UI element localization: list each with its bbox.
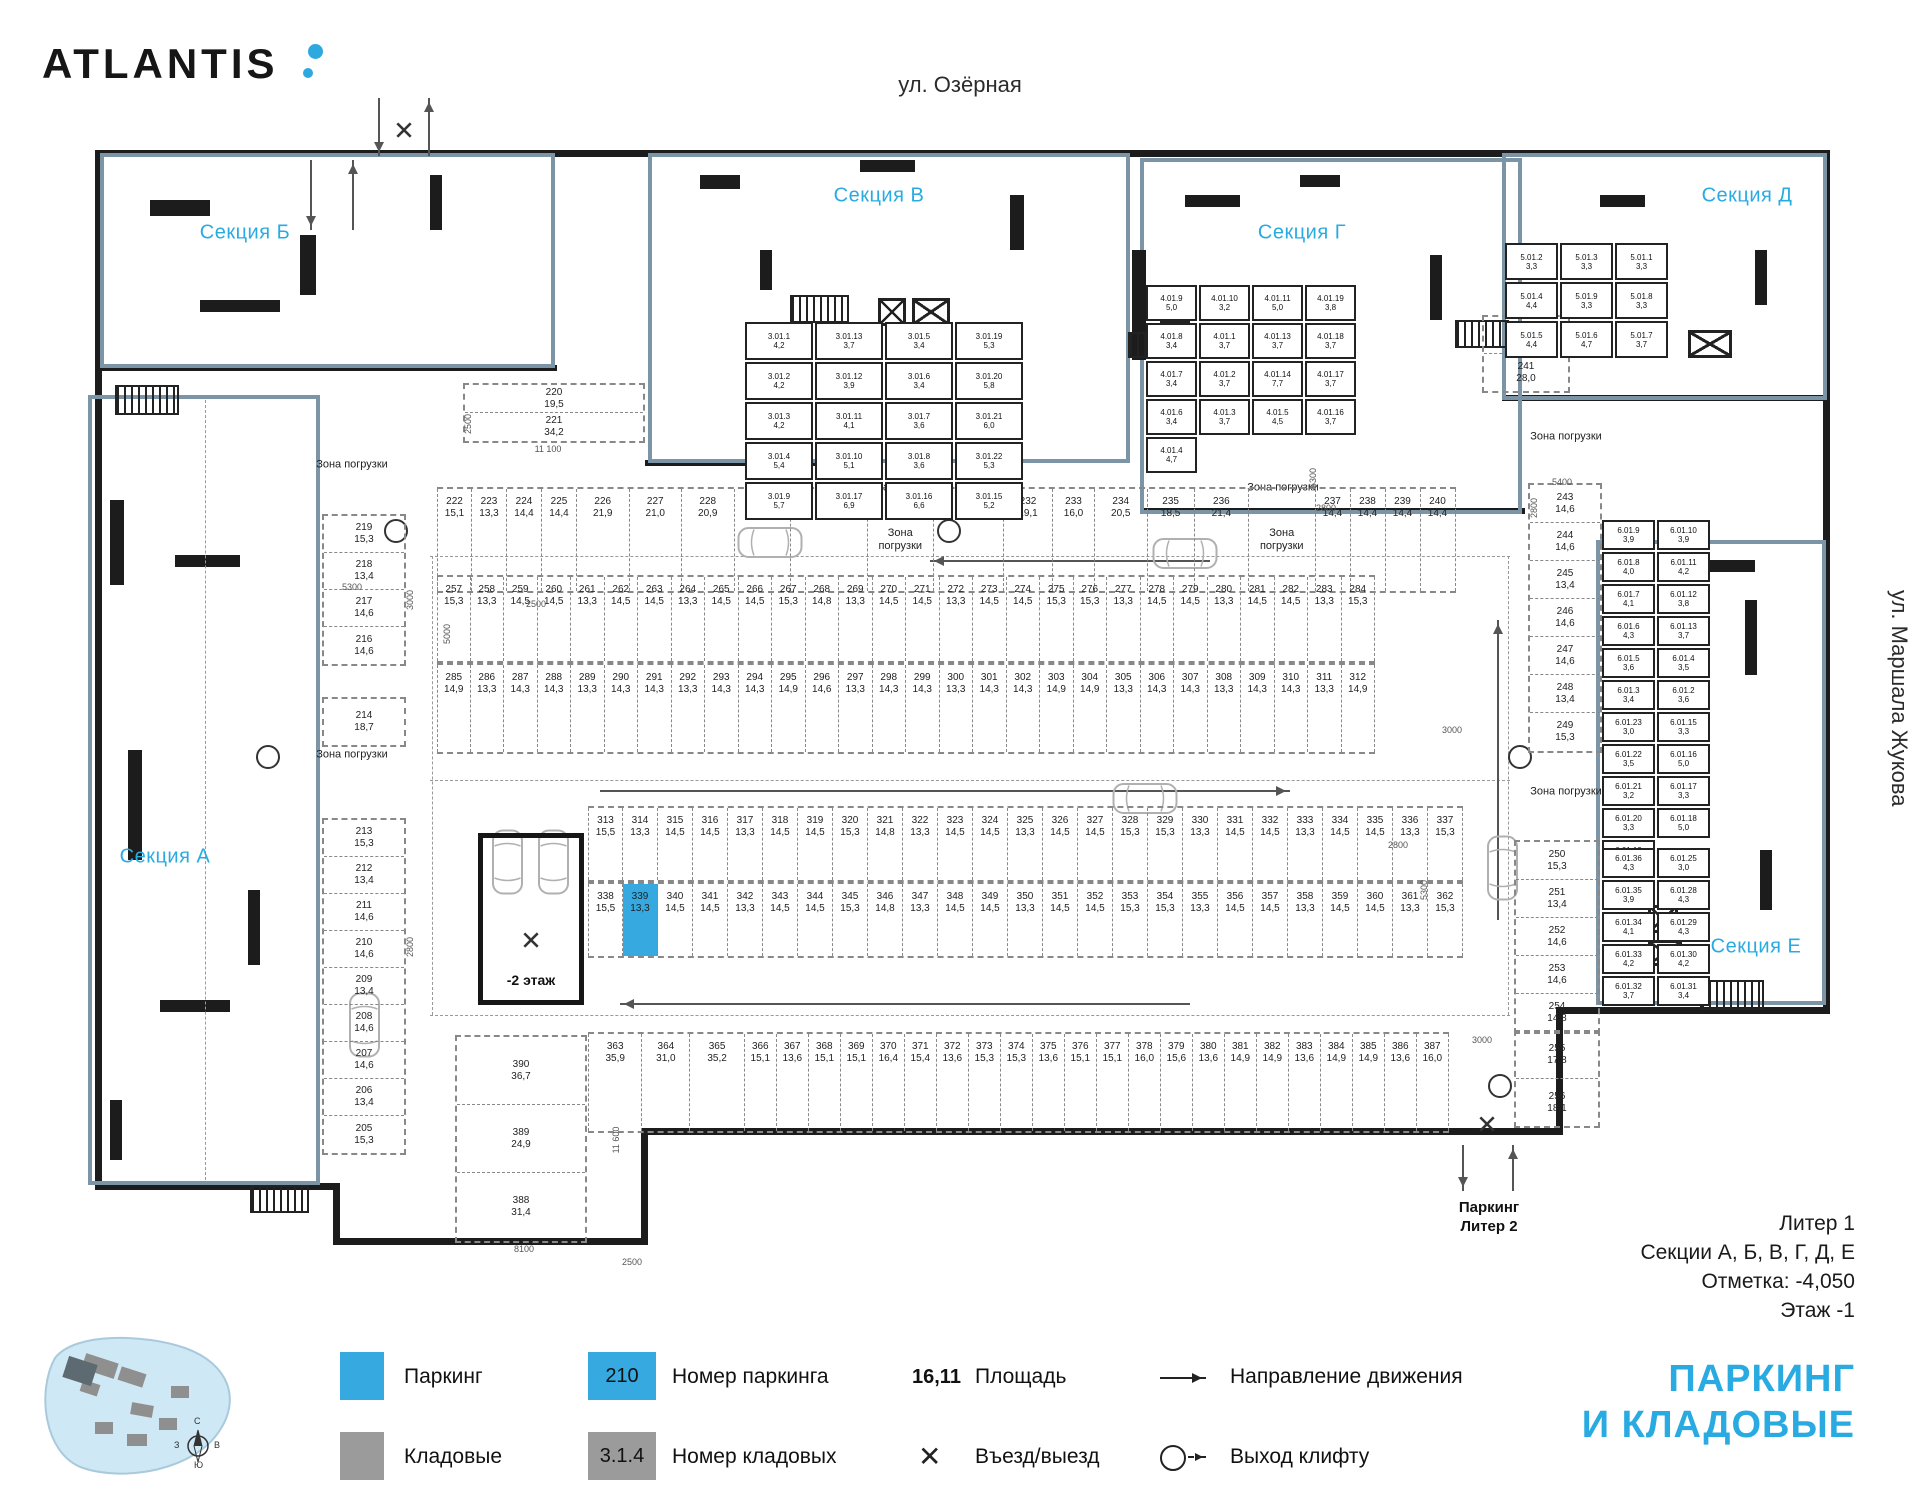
parking-space[interactable]: 32015,3	[833, 808, 868, 880]
parking-area: 15,3	[840, 903, 859, 915]
parking-number: 220	[546, 387, 563, 399]
parking-space[interactable]: 28514,9	[437, 665, 471, 752]
storage-cell: 3.01.133,7	[815, 322, 883, 360]
parking-space[interactable]: 30114,3	[973, 665, 1007, 752]
parking-number: 219	[356, 522, 373, 534]
parking-space[interactable]: 27014,5	[873, 577, 907, 661]
parking-space[interactable]: 32815,3	[1113, 808, 1148, 880]
parking-number: 275	[1048, 584, 1065, 596]
parking-space[interactable]: 36535,2	[690, 1034, 744, 1131]
parking-area: 15,1	[1071, 1053, 1090, 1065]
legend-entry-exit-icon: ✕	[918, 1440, 941, 1473]
parking-space[interactable]: 34114,5	[693, 884, 728, 956]
parking-space[interactable]: 27615,3	[1074, 577, 1108, 661]
parking-number: 368	[816, 1041, 833, 1053]
storage-area: 3,2	[1219, 303, 1230, 312]
storage-area: 3,5	[1623, 759, 1634, 768]
storage-number: 6.01.15	[1670, 718, 1697, 727]
storage-area: 5,0	[1678, 823, 1689, 832]
parking-number: 320	[842, 815, 859, 827]
parking-area: 15,3	[354, 838, 373, 850]
parking-space[interactable]: 38013,6	[1193, 1034, 1225, 1131]
storage-grid: 5.01.23,35.01.33,35.01.13,35.01.44,45.01…	[1505, 243, 1668, 358]
interior-wall	[248, 890, 260, 965]
parking-space[interactable]: 32714,5	[1078, 808, 1113, 880]
parking-space[interactable]: 31113,3	[1308, 665, 1342, 752]
parking-space[interactable]: 29314,3	[705, 665, 739, 752]
parking-space[interactable]: 24414,6	[1530, 523, 1600, 561]
parking-area: 13,3	[1015, 827, 1034, 839]
parking-space[interactable]: 34314,5	[763, 884, 798, 956]
parking-space[interactable]: 38214,9	[1257, 1034, 1289, 1131]
parking-space[interactable]: 27914,5	[1174, 577, 1208, 661]
storage-cell: 3.01.195,3	[955, 322, 1023, 360]
storage-number: 6.01.32	[1615, 982, 1642, 991]
parking-space[interactable]: 27114,5	[906, 577, 940, 661]
parking-space[interactable]: 26514,5	[705, 577, 739, 661]
parking-space[interactable]: 25715,3	[437, 577, 471, 661]
parking-area: 13,3	[1400, 903, 1419, 915]
parking-number: 348	[947, 891, 964, 903]
parking-space[interactable]: 34414,5	[798, 884, 833, 956]
parking-number: 382	[1264, 1041, 1281, 1053]
parking-space[interactable]: 34213,3	[728, 884, 763, 956]
parking-space[interactable]: 21014,6	[324, 931, 404, 968]
storage-area: 4,2	[1678, 959, 1689, 968]
dimension-label: 8100	[514, 1244, 534, 1254]
parking-number: 366	[752, 1041, 769, 1053]
parking-space[interactable]: 37315,3	[969, 1034, 1001, 1131]
parking-column: 24314,624414,624513,424614,624714,624813…	[1528, 483, 1602, 753]
parking-area: 14,6	[354, 608, 373, 620]
parking-area: 13,3	[1114, 684, 1133, 696]
parking-area: 14,6	[354, 912, 373, 924]
parking-space[interactable]: 26715,3	[772, 577, 806, 661]
parking-space[interactable]: 33114,5	[1218, 808, 1253, 880]
parking-number: 304	[1081, 672, 1098, 684]
parking-space[interactable]: 25015,3	[1516, 842, 1598, 880]
storage-number: 5.01.4	[1520, 292, 1542, 301]
parking-space[interactable]: 36713,6	[777, 1034, 809, 1131]
parking-space[interactable]: 25214,6	[1516, 918, 1598, 956]
parking-space[interactable]: 20714,6	[324, 1042, 404, 1079]
parking-space[interactable]: 29614,6	[806, 665, 840, 752]
parking-space[interactable]: 20913,4	[324, 968, 404, 1005]
parking-space[interactable]: 20515,3	[324, 1116, 404, 1153]
parking-area: 13,4	[354, 875, 373, 887]
parking-space[interactable]: 31014,3	[1275, 665, 1309, 752]
parking-space[interactable]: 31214,9	[1342, 665, 1376, 752]
parking-space[interactable]: 25813,3	[471, 577, 505, 661]
parking-space[interactable]: 23914,4	[1386, 489, 1421, 591]
parking-space[interactable]: 29114,3	[638, 665, 672, 752]
dimension-label: 11 600	[611, 1127, 621, 1154]
parking-space[interactable]: 37415,3	[1001, 1034, 1033, 1131]
storage-number: 3.01.19	[976, 332, 1003, 341]
parking-space[interactable]: 30314,9	[1040, 665, 1074, 752]
parking-space[interactable]: 36431,0	[642, 1034, 690, 1131]
parking-space[interactable]: 31914,5	[798, 808, 833, 880]
parking-space[interactable]: 35914,5	[1323, 884, 1358, 956]
parking-space[interactable]: 28114,5	[1241, 577, 1275, 661]
parking-space[interactable]: 28814,3	[538, 665, 572, 752]
parking-area: 14,3	[645, 684, 664, 696]
parking-number: 294	[746, 672, 763, 684]
parking-space-selected[interactable]: 33913,3	[623, 884, 658, 956]
dimension-label: 5300	[1308, 468, 1318, 488]
parking-space[interactable]: 33013,3	[1183, 808, 1218, 880]
parking-space[interactable]: 25618,1	[1516, 1079, 1598, 1126]
parking-space[interactable]: 29814,3	[873, 665, 907, 752]
parking-space[interactable]: 27814,5	[1141, 577, 1175, 661]
parking-space[interactable]: 37816,0	[1129, 1034, 1161, 1131]
storage-number: 4.01.10	[1211, 294, 1238, 303]
parking-space[interactable]: 31614,5	[693, 808, 728, 880]
parking-space[interactable]: 26913,3	[839, 577, 873, 661]
storage-cell: 6.01.223,5	[1602, 744, 1655, 774]
parking-space[interactable]: 21315,3	[324, 820, 404, 857]
storage-cell: 4.01.23,7	[1199, 361, 1250, 397]
storage-area: 3,5	[1678, 663, 1689, 672]
parking-space[interactable]: 28613,3	[471, 665, 505, 752]
parking-space[interactable]: 33313,3	[1288, 808, 1323, 880]
parking-space[interactable]: 29414,3	[739, 665, 773, 752]
parking-column: 21418,7	[322, 697, 406, 747]
storage-number: 4.01.6	[1160, 408, 1182, 417]
parking-space[interactable]: 31814,5	[763, 808, 798, 880]
parking-space[interactable]: 24014,4	[1421, 489, 1456, 591]
parking-space[interactable]: 21714,6	[324, 590, 404, 627]
parking-number: 359	[1332, 891, 1349, 903]
parking-column: 21315,321213,421114,621014,620913,420814…	[322, 818, 406, 1155]
storage-number: 5.01.1	[1630, 253, 1652, 262]
parking-number: 295	[780, 672, 797, 684]
parking-space[interactable]: 28415,3	[1342, 577, 1376, 661]
parking-area: 13,3	[578, 596, 597, 608]
parking-space[interactable]: 27414,5	[1007, 577, 1041, 661]
parking-area: 13,3	[910, 903, 929, 915]
parking-area: 14,9	[1348, 684, 1367, 696]
storage-area: 6,6	[913, 501, 924, 510]
parking-space[interactable]: 31413,3	[623, 808, 658, 880]
storage-number: 6.01.23	[1615, 718, 1642, 727]
parking-space[interactable]: 21418,7	[324, 699, 404, 745]
legend-parking-swatch	[340, 1352, 384, 1400]
storage-number: 3.01.16	[906, 492, 933, 501]
info-elevation: Отметка: -4,050	[1701, 1270, 1855, 1294]
parking-area: 13,4	[1555, 694, 1574, 706]
parking-space[interactable]: 37115,4	[905, 1034, 937, 1131]
parking-space[interactable]: 25517,8	[1516, 1032, 1598, 1079]
parking-area: 13,3	[1315, 596, 1334, 608]
liter2-label-line1: Паркинг	[1459, 1199, 1519, 1216]
parking-area: 15,3	[1155, 827, 1174, 839]
parking-space[interactable]: 35013,3	[1008, 884, 1043, 956]
storage-cell: 3.01.166,6	[885, 482, 953, 520]
parking-space[interactable]: 26314,5	[638, 577, 672, 661]
parking-number: 280	[1215, 584, 1232, 596]
parking-space[interactable]: 35813,3	[1288, 884, 1323, 956]
parking-space[interactable]: 27213,3	[940, 577, 974, 661]
dimension-label: 2800	[405, 937, 415, 957]
dimension-label: 5400	[1552, 477, 1572, 487]
parking-space[interactable]: 24128,0	[1484, 354, 1568, 391]
parking-number: 222	[446, 496, 463, 508]
parking-space[interactable]: 37016,4	[873, 1034, 905, 1131]
parking-space[interactable]: 34614,8	[868, 884, 903, 956]
parking-space[interactable]: 37715,1	[1097, 1034, 1129, 1131]
parking-space[interactable]: 25914,5	[504, 577, 538, 661]
storage-cell: 6.01.304,2	[1657, 944, 1710, 974]
liter2-entry-exit-icon: ✕	[1476, 1110, 1498, 1141]
parking-space[interactable]: 39036,7	[457, 1037, 585, 1105]
parking-space[interactable]: 35315,3	[1113, 884, 1148, 956]
parking-area: 14,6	[354, 949, 373, 961]
parking-space[interactable]: 21813,4	[324, 553, 404, 590]
storage-number: 3.01.9	[768, 492, 790, 501]
parking-area: 15,3	[1555, 732, 1574, 744]
parking-space[interactable]: 24714,6	[1530, 637, 1600, 675]
parking-space[interactable]: 33815,5	[588, 884, 623, 956]
storage-cell: 4.01.83,4	[1146, 323, 1197, 359]
compass-south: Ю	[194, 1460, 203, 1470]
parking-space[interactable]: 36615,1	[745, 1034, 777, 1131]
parking-area: 14,6	[1547, 937, 1566, 949]
parking-area: 14,5	[1365, 903, 1384, 915]
parking-space[interactable]: 27515,3	[1040, 577, 1074, 661]
parking-space[interactable]: 26413,3	[672, 577, 706, 661]
parking-space[interactable]: 38514,9	[1353, 1034, 1385, 1131]
storage-number: 5.01.9	[1575, 292, 1597, 301]
dimension-label: 5300	[342, 582, 362, 592]
parking-space[interactable]: 31713,3	[728, 808, 763, 880]
parking-space[interactable]: 37915,6	[1161, 1034, 1193, 1131]
storage-number: 4.01.7	[1160, 370, 1182, 379]
parking-area: 15,3	[1547, 861, 1566, 873]
parking-space[interactable]: 26614,5	[739, 577, 773, 661]
parking-space[interactable]: 27314,5	[973, 577, 1007, 661]
parking-area: 14,9	[1047, 684, 1066, 696]
storage-area: 6,9	[843, 501, 854, 510]
parking-space[interactable]: 29914,3	[906, 665, 940, 752]
parking-space[interactable]: 25314,6	[1516, 956, 1598, 994]
parking-area: 14,3	[1248, 684, 1267, 696]
parking-space[interactable]: 26014,5	[538, 577, 572, 661]
parking-space[interactable]: 38831,4	[457, 1173, 585, 1241]
storage-area: 5,2	[983, 501, 994, 510]
parking-number: 351	[1052, 891, 1069, 903]
parking-area: 14,6	[354, 1023, 373, 1035]
parking-number: 324	[982, 815, 999, 827]
parking-space[interactable]: 29713,3	[839, 665, 873, 752]
parking-number: 286	[478, 672, 495, 684]
parking-space[interactable]: 37615,1	[1065, 1034, 1097, 1131]
parking-space[interactable]: 30813,3	[1208, 665, 1242, 752]
parking-space[interactable]: 37513,6	[1033, 1034, 1065, 1131]
parking-number: 317	[737, 815, 754, 827]
storage-cell: 6.01.33,4	[1602, 680, 1655, 710]
parking-space[interactable]: 24314,6	[1530, 485, 1600, 523]
parking-number: 216	[356, 634, 373, 646]
parking-area: 14,8	[812, 596, 831, 608]
parking-area: 35,2	[707, 1053, 726, 1065]
parking-space[interactable]: 31514,5	[658, 808, 693, 880]
parking-space[interactable]: 21915,3	[324, 516, 404, 553]
parking-space[interactable]: 26814,8	[806, 577, 840, 661]
parking-space[interactable]: 35614,5	[1218, 884, 1253, 956]
parking-space[interactable]: 36335,9	[588, 1034, 642, 1131]
parking-number: 243	[1557, 492, 1574, 504]
parking-number: 249	[1557, 720, 1574, 732]
parking-number: 227	[647, 496, 664, 508]
storage-cell: 6.01.294,3	[1657, 912, 1710, 942]
parking-space[interactable]: 28313,3	[1308, 577, 1342, 661]
parking-space[interactable]: 32513,3	[1008, 808, 1043, 880]
parking-space[interactable]: 28214,5	[1275, 577, 1309, 661]
parking-space[interactable]: 36915,1	[841, 1034, 873, 1131]
parking-space[interactable]: 33414,5	[1323, 808, 1358, 880]
parking-area: 14,9	[1327, 1053, 1346, 1065]
parking-space[interactable]: 25414,8	[1516, 994, 1598, 1032]
storage-cell: 6.01.344,1	[1602, 912, 1655, 942]
parking-number: 254	[1549, 1001, 1566, 1013]
parking-area: 21,9	[593, 508, 612, 520]
storage-cell: 3.01.155,2	[955, 482, 1023, 520]
parking-space[interactable]: 36215,3	[1428, 884, 1463, 956]
parking-space[interactable]: 21213,4	[324, 857, 404, 894]
parking-space[interactable]: 36815,1	[809, 1034, 841, 1131]
parking-space[interactable]: 22134,2	[465, 413, 643, 441]
parking-number: 360	[1367, 891, 1384, 903]
parking-space[interactable]: 21114,6	[324, 894, 404, 931]
parking-space[interactable]: 33214,5	[1253, 808, 1288, 880]
parking-space[interactable]: 28913,3	[571, 665, 605, 752]
parking-space[interactable]: 28013,3	[1208, 577, 1242, 661]
parking-area: 14,5	[1365, 827, 1384, 839]
parking-space[interactable]: 34515,3	[833, 884, 868, 956]
storage-cell: 6.01.353,9	[1602, 880, 1655, 910]
parking-space[interactable]: 30714,3	[1174, 665, 1208, 752]
info-liter: Литер 1	[1779, 1212, 1855, 1236]
parking-space[interactable]: 38414,9	[1321, 1034, 1353, 1131]
legend-parking-number-label: Номер паркинга	[672, 1365, 829, 1389]
parking-number: 277	[1115, 584, 1132, 596]
parking-number: 205	[356, 1123, 373, 1135]
parking-space[interactable]: 29213,3	[672, 665, 706, 752]
legend-lift-label: Выход клифту	[1230, 1445, 1369, 1469]
parking-number: 350	[1017, 891, 1034, 903]
parking-space[interactable]: 24813,4	[1530, 675, 1600, 713]
dimension-label: 2500	[526, 599, 546, 609]
parking-space[interactable]: 35214,5	[1078, 884, 1113, 956]
storage-cell: 6.01.213,2	[1602, 776, 1655, 806]
parking-space[interactable]: 34914,5	[973, 884, 1008, 956]
parking-number: 315	[667, 815, 684, 827]
parking-space[interactable]: 30914,3	[1241, 665, 1275, 752]
parking-space[interactable]: 27713,3	[1107, 577, 1141, 661]
storage-cell: 3.01.83,6	[885, 442, 953, 480]
parking-space[interactable]: 35114,5	[1043, 884, 1078, 956]
parking-space[interactable]: 31315,5	[588, 808, 623, 880]
parking-area: 14,5	[945, 903, 964, 915]
storage-area: 3,3	[1636, 262, 1647, 271]
parking-space[interactable]: 38114,9	[1225, 1034, 1257, 1131]
parking-space[interactable]: 32614,5	[1043, 808, 1078, 880]
parking-space[interactable]: 20613,4	[324, 1079, 404, 1116]
parking-number: 389	[513, 1127, 530, 1139]
parking-area: 13,4	[354, 986, 373, 998]
parking-area: 14,5	[1281, 596, 1300, 608]
parking-space[interactable]: 35714,5	[1253, 884, 1288, 956]
parking-space[interactable]: 34713,3	[903, 884, 938, 956]
direction-arrow	[620, 1003, 1190, 1005]
parking-space[interactable]: 30513,3	[1107, 665, 1141, 752]
parking-space[interactable]: 22019,5	[465, 385, 643, 413]
parking-space[interactable]: 26113,3	[571, 577, 605, 661]
parking-space[interactable]: 20814,6	[324, 1005, 404, 1042]
lane-dashed-line	[430, 1015, 1510, 1016]
parking-space[interactable]: 30414,9	[1074, 665, 1108, 752]
parking-space[interactable]: 21614,6	[324, 627, 404, 664]
parking-space[interactable]: 33715,3	[1428, 808, 1463, 880]
parking-space[interactable]: 30614,3	[1141, 665, 1175, 752]
parking-area: 13,3	[1015, 903, 1034, 915]
parking-space[interactable]: 37213,6	[937, 1034, 969, 1131]
parking-space[interactable]: 29014,3	[605, 665, 639, 752]
parking-space[interactable]: 32213,3	[903, 808, 938, 880]
parking-space[interactable]: 24915,3	[1530, 713, 1600, 751]
storage-number: 6.01.33	[1615, 950, 1642, 959]
parking-space[interactable]: 35415,3	[1148, 884, 1183, 956]
storage-area: 3,3	[1581, 301, 1592, 310]
parking-space[interactable]: 24614,6	[1530, 599, 1600, 637]
parking-number: 279	[1182, 584, 1199, 596]
parking-number: 296	[813, 672, 830, 684]
parking-area: 14,5	[544, 596, 563, 608]
parking-number: 335	[1367, 815, 1384, 827]
storage-number: 6.01.29	[1670, 918, 1697, 927]
parking-space[interactable]: 30214,3	[1007, 665, 1041, 752]
parking-space[interactable]: 38313,6	[1289, 1034, 1321, 1131]
interior-wall	[1600, 195, 1645, 207]
storage-cell: 5.01.33,3	[1560, 243, 1613, 280]
parking-space[interactable]: 28714,3	[504, 665, 538, 752]
dimension-label: 3000	[1472, 1035, 1492, 1045]
parking-space[interactable]: 34814,5	[938, 884, 973, 956]
parking-space[interactable]: 29514,9	[772, 665, 806, 752]
parking-space[interactable]: 32915,3	[1148, 808, 1183, 880]
storage-cell: 3.01.73,6	[885, 402, 953, 440]
parking-space[interactable]: 32414,5	[973, 808, 1008, 880]
parking-space[interactable]: 38613,6	[1385, 1034, 1417, 1131]
parking-space[interactable]: 24513,4	[1530, 561, 1600, 599]
parking-space[interactable]: 32114,8	[868, 808, 903, 880]
loading-zone-label: Зона погрузки	[313, 749, 391, 762]
parking-space[interactable]: 38716,0	[1417, 1034, 1449, 1131]
parking-space[interactable]: 38924,9	[457, 1105, 585, 1173]
parking-space[interactable]: 25113,4	[1516, 880, 1598, 918]
parking-number: 298	[880, 672, 897, 684]
parking-space[interactable]: 35513,3	[1183, 884, 1218, 956]
parking-number: 291	[646, 672, 663, 684]
parking-space[interactable]: 30013,3	[940, 665, 974, 752]
parking-space[interactable]: 36014,5	[1358, 884, 1393, 956]
parking-number: 337	[1437, 815, 1454, 827]
parking-space[interactable]: 32314,5	[938, 808, 973, 880]
parking-space[interactable]: 34014,5	[658, 884, 693, 956]
storage-area: 3,4	[1166, 379, 1177, 388]
parking-space[interactable]: 26214,5	[605, 577, 639, 661]
